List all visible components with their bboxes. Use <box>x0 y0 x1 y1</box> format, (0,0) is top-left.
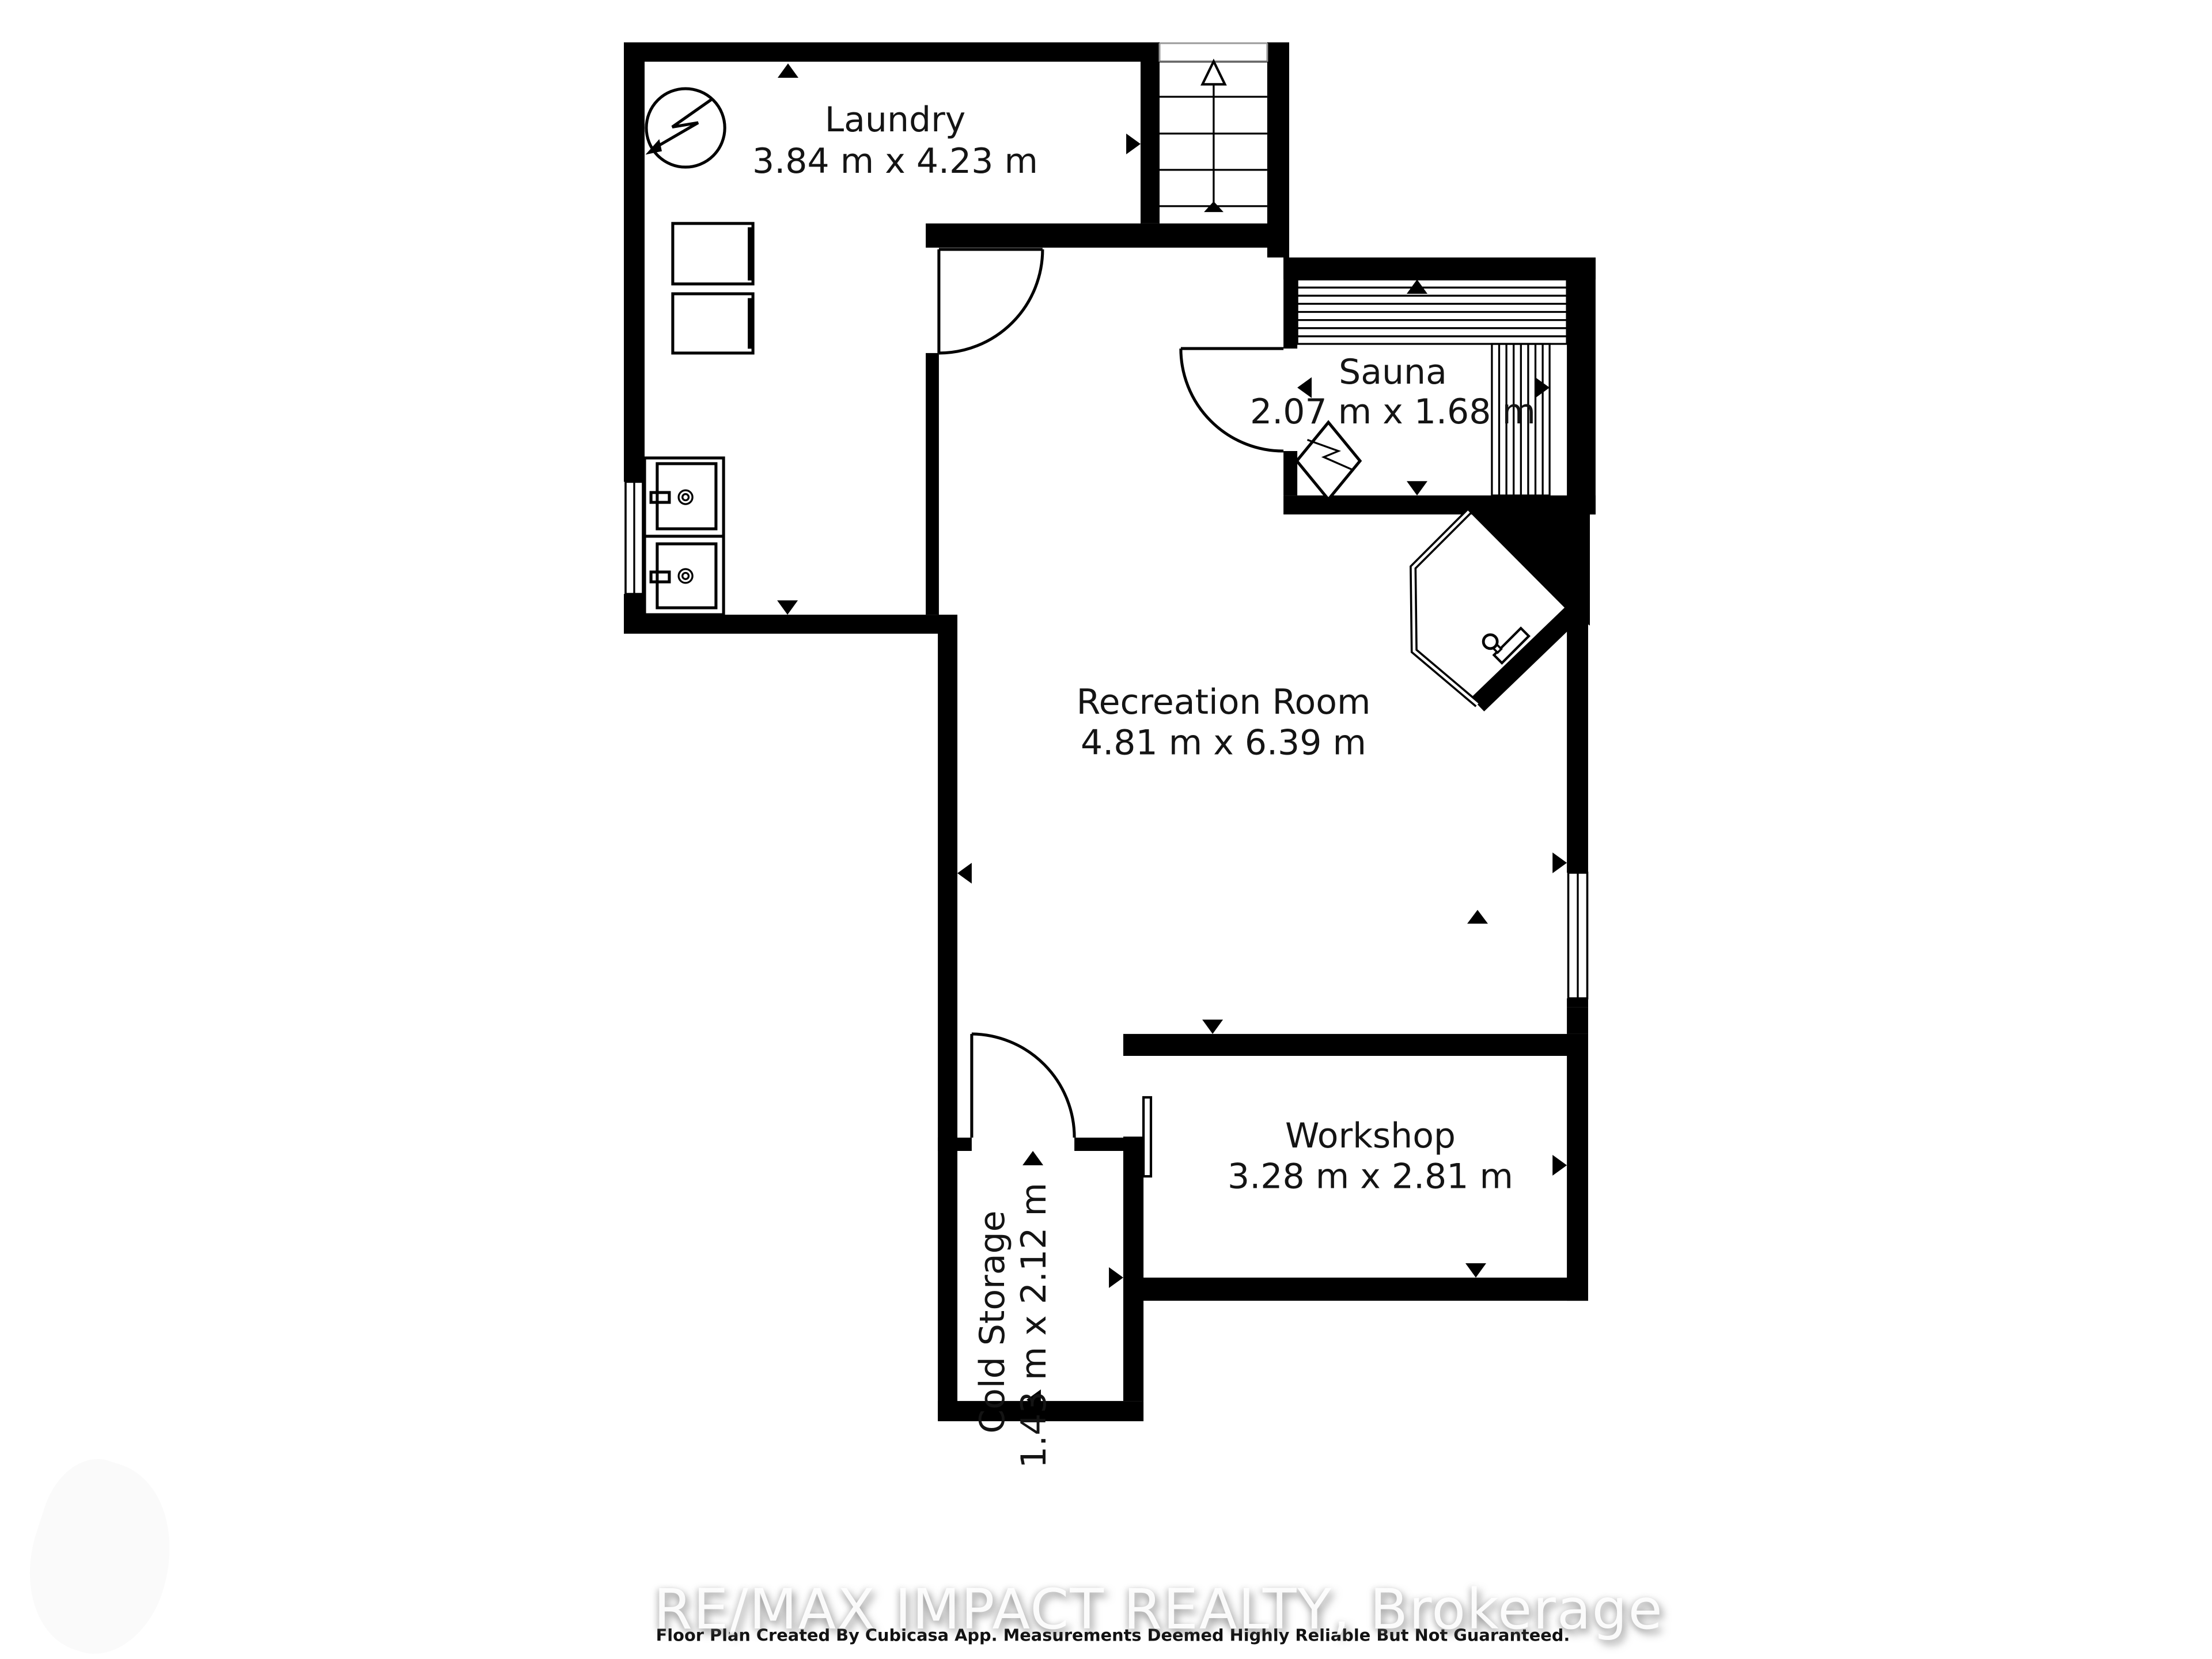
measurement-arrow-icon <box>778 63 798 78</box>
recreation-window-icon <box>1567 864 1588 1007</box>
cold-storage-room-label: Cold Storage <box>972 1210 1013 1433</box>
measurement-arrow-icon <box>1126 134 1141 154</box>
laundry-room-label: Laundry <box>825 100 966 140</box>
sauna-room-label: Sauna <box>1339 352 1447 392</box>
measurement-arrow-icon <box>1407 481 1427 495</box>
brokerage-watermark: RE/MAX IMPACT REALTY, Brokerage <box>654 1577 1664 1642</box>
workshop-room-dimensions: 3.28 m x 2.81 m <box>1228 1157 1513 1197</box>
measurement-arrow-icon <box>1552 853 1567 873</box>
staircase-up-icon <box>1160 43 1267 212</box>
floor-plan-page: Laundry 3.84 m x 4.23 m Sauna 2.07 m x 1… <box>0 0 2212 1659</box>
laundry-window-icon <box>624 473 645 604</box>
workshop-door-leaf-icon <box>1143 1097 1151 1176</box>
dryer-icon <box>673 294 753 353</box>
cold-storage-room-dimensions: 1.43 m x 2.12 m <box>1014 1183 1054 1468</box>
laundry-room-dimensions: 3.84 m x 4.23 m <box>752 141 1038 181</box>
sauna-heater-icon <box>1297 422 1360 499</box>
floor-plan-canvas: Laundry 3.84 m x 4.23 m Sauna 2.07 m x 1… <box>0 0 2212 1659</box>
recreation-room-dimensions: 4.81 m x 6.39 m <box>1081 723 1366 763</box>
stair-up-arrowhead <box>1202 62 1225 85</box>
cold-storage-door-swing-icon <box>972 1034 1074 1138</box>
measurement-arrow-icon <box>1202 1020 1223 1034</box>
measurement-arrow-icon <box>957 863 972 884</box>
measurement-arrow-icon <box>777 600 798 615</box>
water-heater-icon <box>646 89 725 167</box>
measurement-arrow-icon <box>1465 1263 1486 1278</box>
measurement-arrow-icon <box>1467 910 1488 924</box>
measurement-arrow-icon <box>1552 1155 1567 1176</box>
measurement-arrow-icon <box>1109 1267 1123 1288</box>
laundry-door-swing-icon <box>939 249 1043 353</box>
washer-icon <box>673 224 753 284</box>
measurement-arrow-icon <box>1022 1151 1043 1165</box>
sauna-room-dimensions: 2.07 m x 1.68 m <box>1250 392 1536 432</box>
laundry-double-sink-icon <box>645 458 724 615</box>
recreation-room-label: Recreation Room <box>1077 682 1371 722</box>
workshop-room-label: Workshop <box>1285 1116 1456 1156</box>
